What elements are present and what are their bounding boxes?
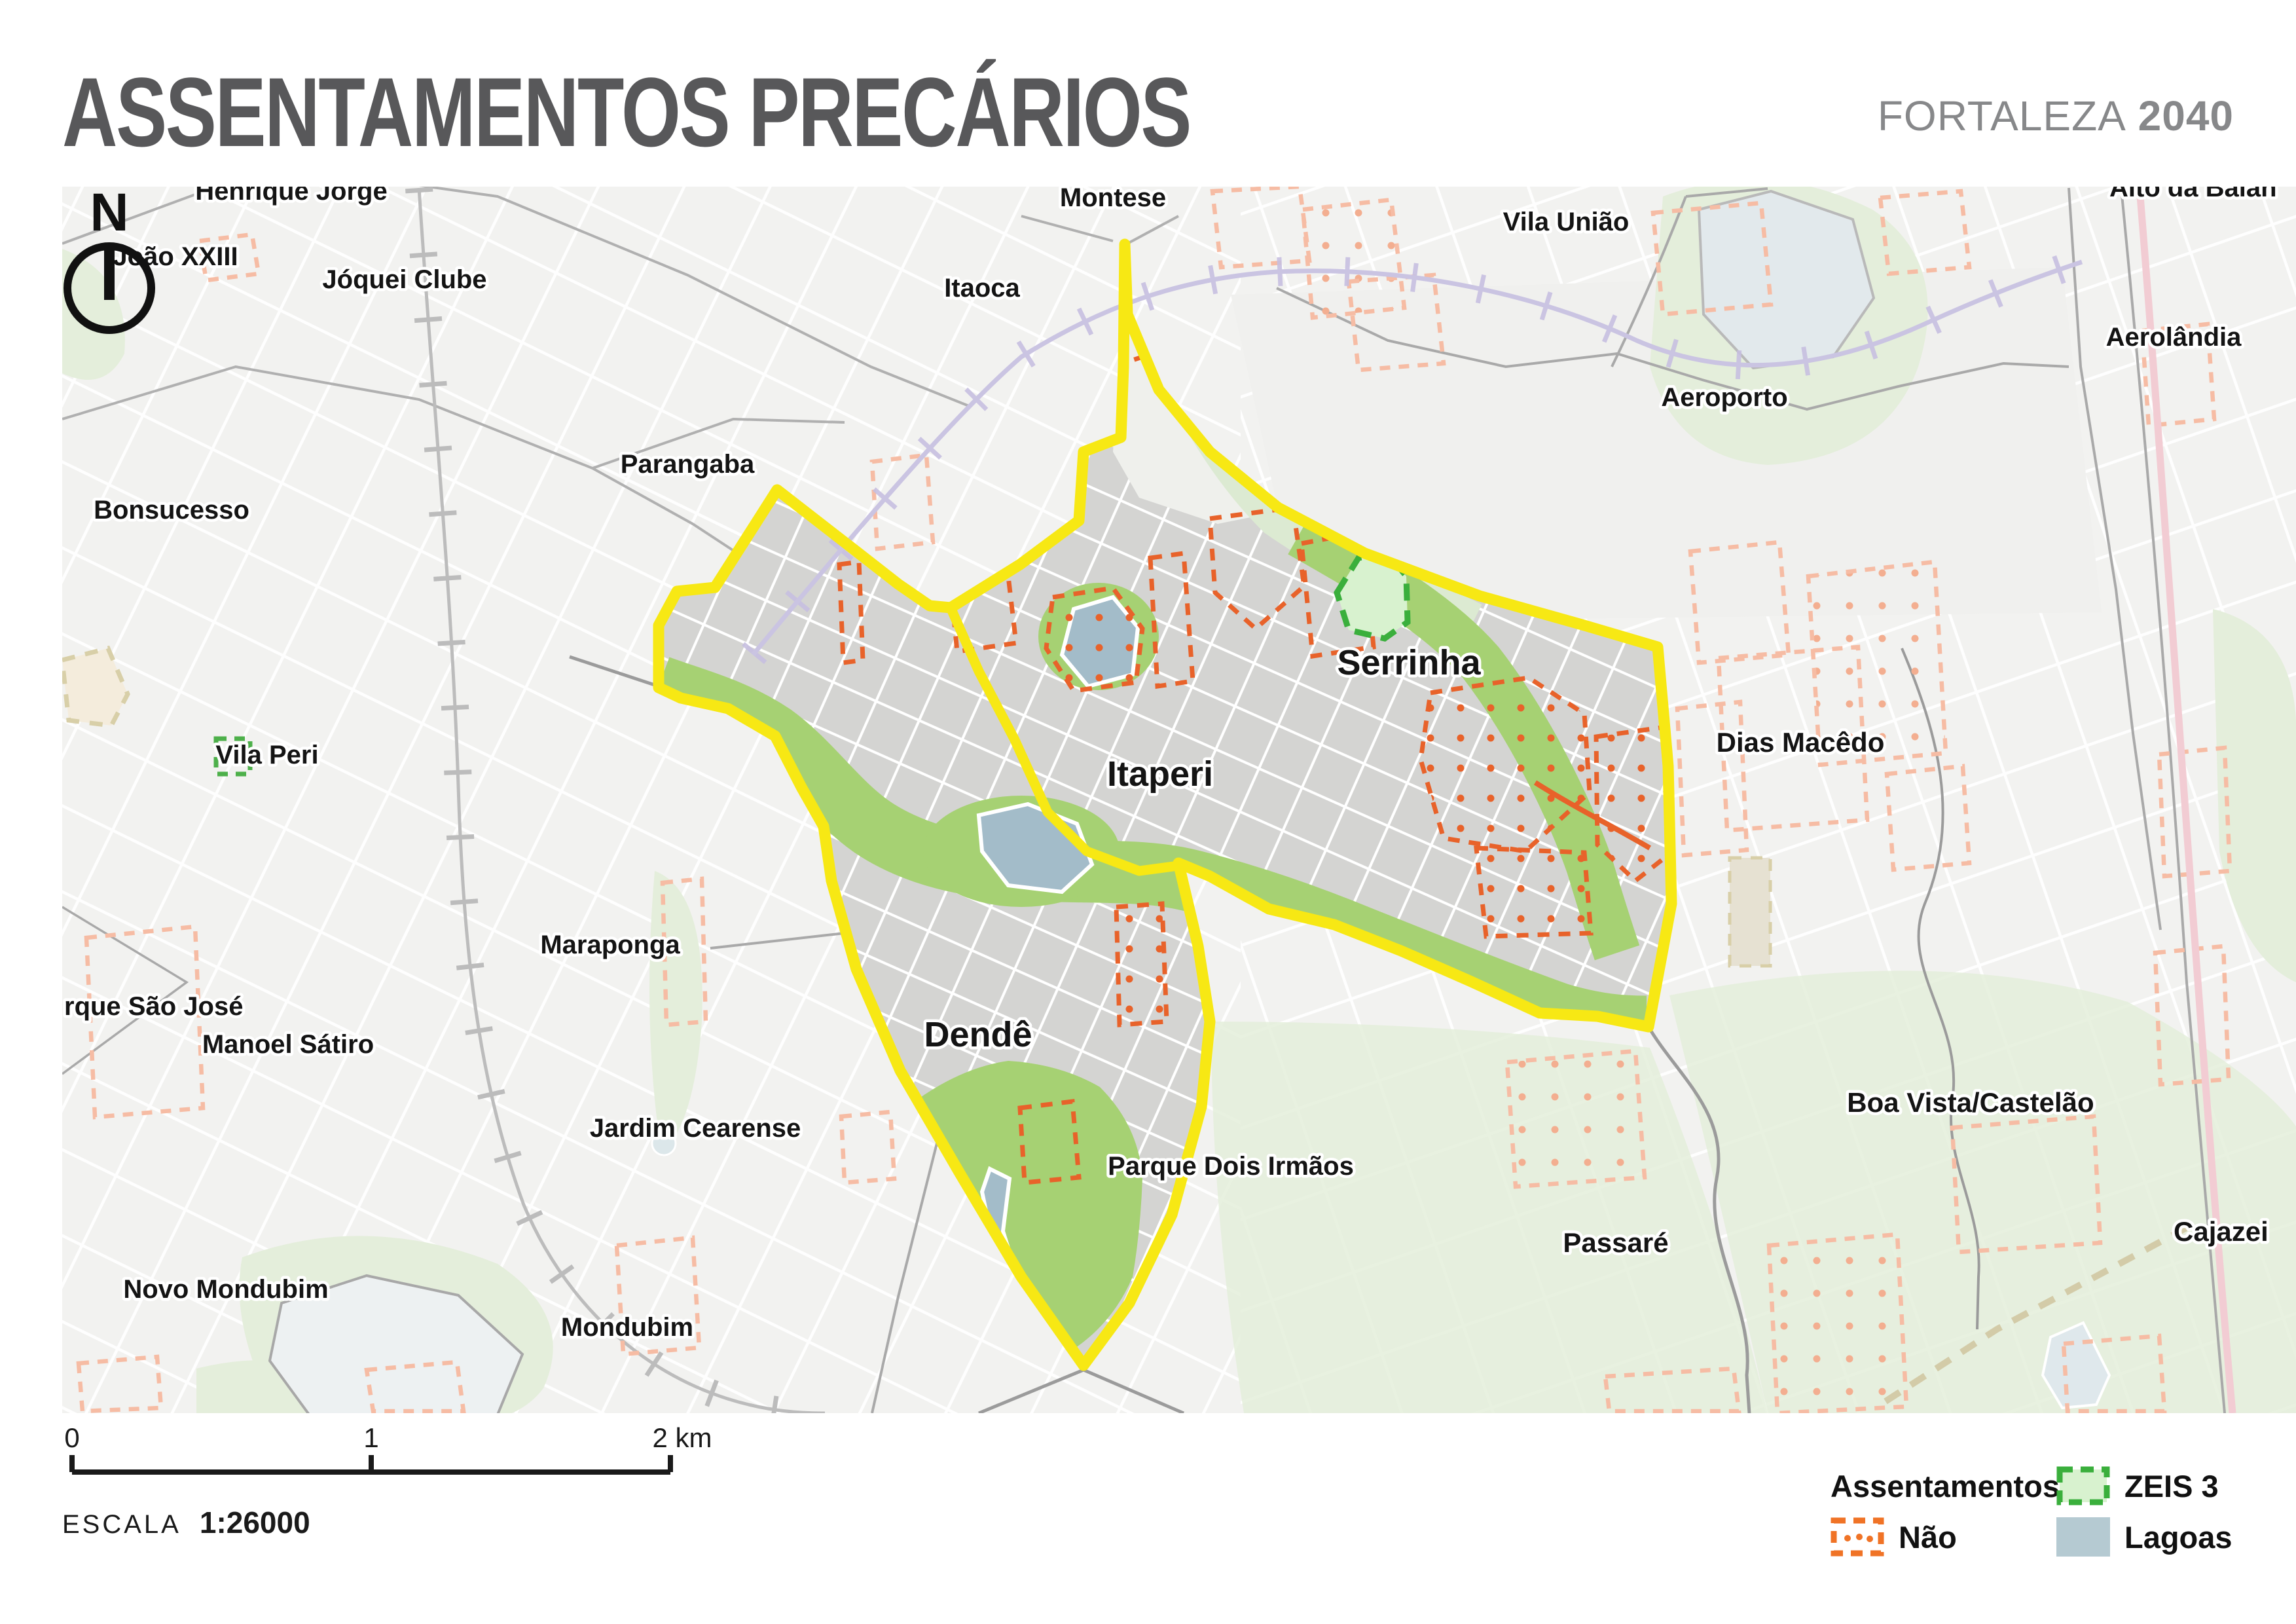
neighborhood-label: Aerolândia (2106, 323, 2242, 352)
neighborhood-label: Dias Macêdo (1717, 727, 1885, 758)
neighborhood-label: Itaperi (1107, 754, 1213, 794)
neighborhood-label: Novo Mondubim (123, 1275, 328, 1304)
neighborhood-label: Bonsucesso (94, 496, 249, 525)
neighborhood-label: Alto da Balan (2109, 174, 2277, 202)
neighborhood-label: Boa Vista/Castelão (1847, 1087, 2094, 1118)
city-map: Henrique JorgeJoão XXIIIJóquei ClubeMont… (0, 0, 2296, 1624)
north-arrow-letter: N (90, 183, 128, 242)
neighborhood-label: Manoel Sátiro (202, 1030, 374, 1059)
legend-title: Assentamentos (1831, 1468, 2060, 1504)
neighborhood-label: Dendê (924, 1015, 1032, 1054)
legend-row-1: Assentamentos ZEIS 3 (1831, 1462, 2263, 1510)
neighborhood-label: Jardim Cearense (590, 1114, 801, 1143)
scale-tick-label: 2 km (652, 1422, 712, 1453)
neighborhood-label: Vila Peri (215, 741, 318, 769)
neighborhood-label: Mondubim (561, 1313, 693, 1342)
neighborhood-label: Aeroporto (1661, 383, 1787, 412)
poster-page: ASSENTAMENTOS PRECÁRIOS FORTALEZA 2040 (0, 0, 2296, 1624)
zeis3-swatch-icon (2056, 1466, 2110, 1505)
escala-label: ESCALA (62, 1510, 181, 1539)
neighborhood-label: Cajazei (2174, 1216, 2269, 1247)
settlement-no-swatch-icon (1831, 1517, 1884, 1557)
legend-row-2: Não Lagoas (1831, 1513, 2263, 1561)
neighborhood-label: Parangaba (621, 450, 755, 479)
legend: Assentamentos ZEIS 3 (1831, 1462, 2263, 1564)
lagoas-swatch-icon (2056, 1517, 2110, 1557)
escala-value: 1:26000 (200, 1505, 310, 1540)
neighborhood-label: Serrinha (1337, 643, 1481, 682)
neighborhood-label: Parque Dois Irmãos (1108, 1152, 1354, 1181)
neighborhood-label: Montese (1060, 183, 1166, 212)
neighborhood-label: Itaoca (944, 274, 1020, 303)
scale-bar: 012 km (64, 1422, 712, 1472)
legend-lagoas-label: Lagoas (2124, 1519, 2232, 1555)
scale-text: ESCALA1:26000 (62, 1505, 310, 1540)
legend-zeis3-label: ZEIS 3 (2124, 1468, 2219, 1504)
legend-nao-label: Não (1899, 1519, 1957, 1555)
neighborhood-label: Henrique Jorge (195, 177, 387, 206)
neighborhood-label: Maraponga (540, 931, 680, 959)
scale-tick-label: 0 (64, 1422, 79, 1453)
neighborhood-label: Vila União (1503, 208, 1630, 236)
neighborhood-label: rque São José (64, 992, 243, 1021)
neighborhood-label: Passaré (1563, 1227, 1668, 1258)
neighborhood-label: Jóquei Clube (322, 265, 486, 294)
dias-macedo-tan-block (1730, 858, 1770, 966)
scale-tick-label: 1 (363, 1422, 378, 1453)
